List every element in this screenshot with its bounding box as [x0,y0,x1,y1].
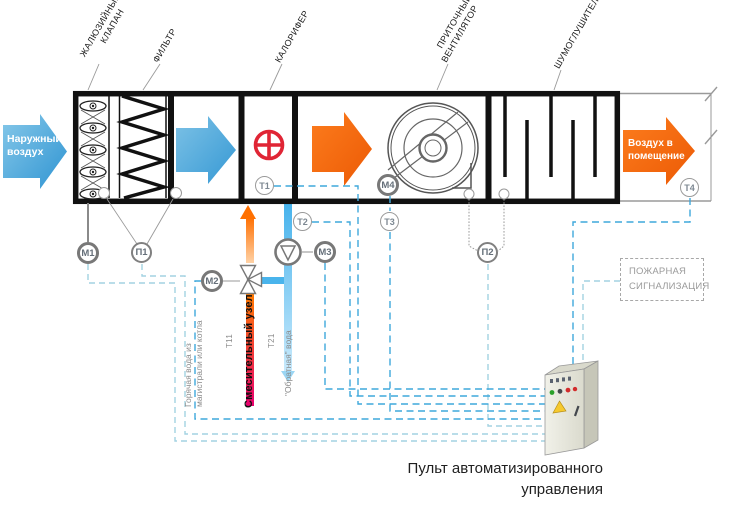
supply-arrowhead [240,205,256,219]
sensor-m4: М4 [377,174,399,196]
three-way-valve [241,266,262,294]
pressure-tap [171,188,182,199]
supply-riser [246,217,254,263]
sensor-t2: Т2 [293,212,312,231]
red-indicator [573,387,577,391]
sensor-m3: М3 [314,241,336,263]
control-wiring-pale [88,264,620,441]
circulation-pump [276,240,301,265]
sensor-t1: Т1 [255,176,274,195]
pressure-tap [99,188,110,199]
ahu-automation-diagram: Наружныйвоздух Воздух впомещение ЖАЛЮЗИЙ… [0,0,740,513]
fan-scroll [388,103,478,193]
pressure-tap [499,189,509,199]
sensor-t4: Т4 [680,178,699,197]
sensor-t3: Т3 [380,212,399,231]
inlet-air-label: Наружныйвоздух [7,133,62,159]
sensor-m1: М1 [77,242,99,264]
sensor-p2: П2 [477,242,498,263]
sensor-m2: М2 [201,270,223,292]
control-cabinet [545,361,598,455]
dark-indicator [558,389,563,394]
label-leaders [88,64,561,90]
control-panel-caption: Пульт автоматизированного управления [368,458,603,500]
pressure-tap [464,189,474,199]
fire-alarm-box: ПОЖАРНАЯ СИГНАЛИЗАЦИЯ [620,258,704,301]
bypass-pipe [262,277,284,284]
sensor-p1: П1 [131,242,152,263]
heater-symbol [256,132,283,159]
red-indicator [566,388,571,393]
control-wiring [195,186,690,419]
green-indicator [550,390,555,395]
outlet-air-label: Воздух впомещение [628,137,685,163]
diagram-canvas [0,0,740,513]
